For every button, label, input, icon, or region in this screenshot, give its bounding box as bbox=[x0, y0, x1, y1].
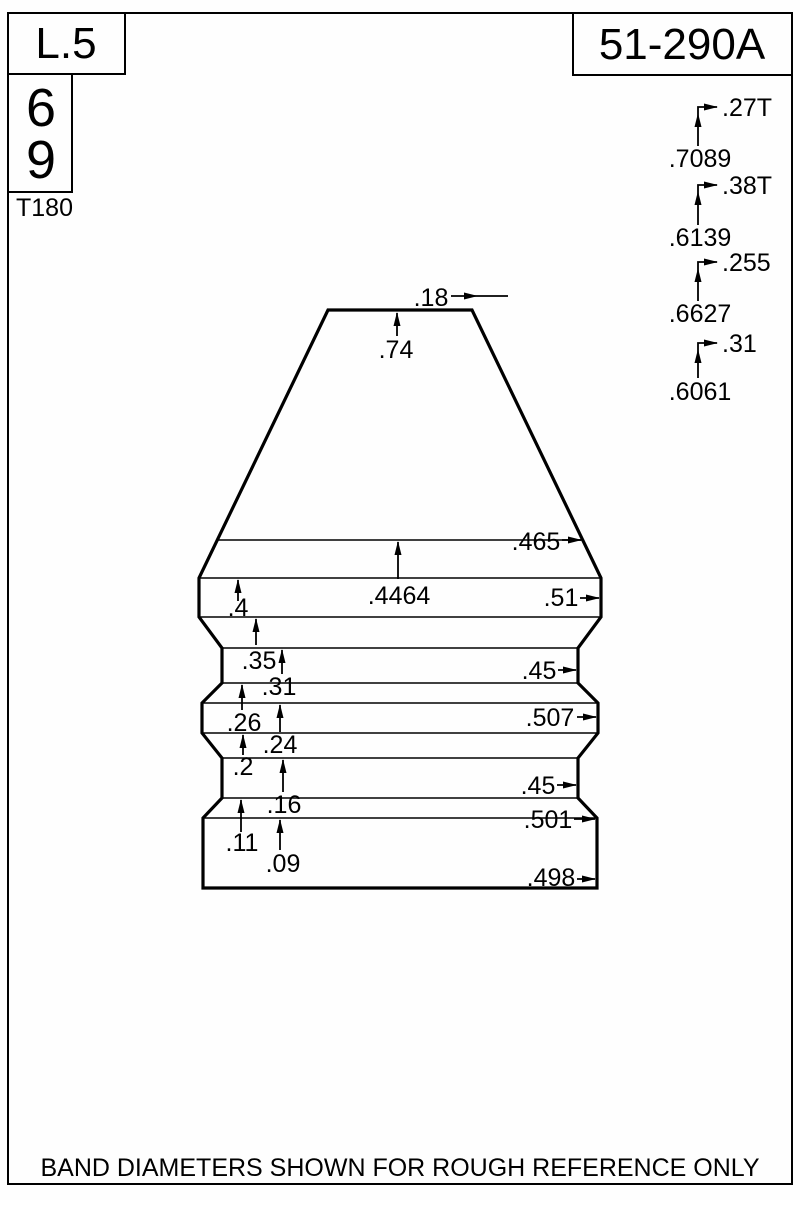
cavity-lower: 9 bbox=[26, 130, 56, 190]
nose-length-label-4: .6061 bbox=[669, 378, 732, 406]
mold-number: 51-290A bbox=[599, 20, 766, 69]
dim-length-16-label: .16 bbox=[267, 791, 302, 819]
dim-dia-45a-label: .45 bbox=[522, 657, 557, 685]
right-arrow-icon bbox=[464, 293, 478, 300]
nose-length-label-1: .7089 bbox=[669, 145, 732, 173]
nose-stack-group-3: .255 .6627 bbox=[669, 249, 771, 328]
nose-offset-label-3: .255 bbox=[722, 249, 771, 277]
footer-note: BAND DIAMETERS SHOWN FOR ROUGH REFERENCE… bbox=[40, 1154, 759, 1182]
mold-drawing: L.5 51-290A 6 9 T180 .27T .7089 .38T .61… bbox=[0, 0, 800, 1200]
dim-dia-51-label: .51 bbox=[544, 584, 579, 612]
scale-label: L.5 bbox=[35, 19, 96, 68]
dim-length-40-label: .4 bbox=[228, 594, 249, 622]
dim-length-74-label: .74 bbox=[379, 336, 414, 364]
dim-length-09-label: .09 bbox=[266, 850, 301, 878]
dim-length-31-label: .31 bbox=[262, 673, 297, 701]
nose-stack-group-2: .38T .6139 bbox=[669, 172, 772, 252]
nose-offset-label-4: .31 bbox=[722, 330, 757, 358]
dim-length-20-label: .2 bbox=[233, 753, 254, 781]
dim-length-4464-label: .4464 bbox=[368, 582, 431, 610]
dim-dia-465-label: .465 bbox=[512, 528, 561, 556]
drawing-sheet: L.5 51-290A 6 9 T180 .27T .7089 .38T .61… bbox=[0, 0, 800, 1200]
dim-dia-498-label: .498 bbox=[527, 864, 576, 892]
nose-length-label-3: .6627 bbox=[669, 300, 732, 328]
dim-dia-501-label: .501 bbox=[524, 806, 573, 834]
dim-meplat-label: .18 bbox=[414, 284, 449, 312]
nose-offset-label-2: .38T bbox=[722, 172, 772, 200]
dim-dia-45b-label: .45 bbox=[521, 772, 556, 800]
dim-length-24-label: .24 bbox=[263, 731, 298, 759]
dim-dia-507-label: .507 bbox=[526, 704, 575, 732]
tool-id: T180 bbox=[16, 194, 73, 222]
dim-length-11-label: .11 bbox=[226, 829, 259, 857]
nose-stack-group-4: .31 .6061 bbox=[669, 330, 757, 406]
dim-length-35-label: .35 bbox=[242, 647, 277, 675]
up-arrow-icon bbox=[695, 113, 702, 127]
cavity-upper: 6 bbox=[26, 78, 56, 138]
up-arrow-icon bbox=[695, 268, 702, 282]
up-arrow-icon bbox=[695, 349, 702, 363]
nose-stack-group-1: .27T .7089 bbox=[669, 94, 772, 173]
up-arrow-icon bbox=[695, 191, 702, 205]
nose-length-label-2: .6139 bbox=[669, 224, 732, 252]
nose-offset-label-1: .27T bbox=[722, 94, 772, 122]
dim-length-26-label: .26 bbox=[227, 709, 262, 737]
